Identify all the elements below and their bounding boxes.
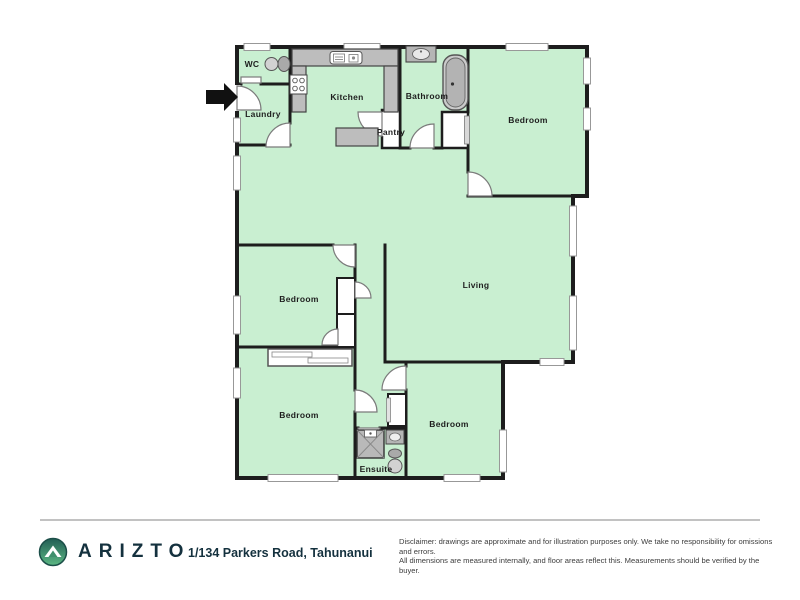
window: [244, 44, 270, 51]
label-kitchen: Kitchen: [330, 92, 363, 102]
mountain-logo-icon: [38, 537, 68, 567]
window: [234, 118, 241, 142]
ensuite-sink-icon: [386, 430, 404, 444]
label-pantry: Pantry: [377, 127, 405, 137]
label-wc: WC: [245, 59, 260, 69]
label-bathroom: Bathroom: [406, 91, 449, 101]
label-ensuite: Ensuite: [360, 464, 393, 474]
property-address: 1/134 Parkers Road, Tahunanui: [188, 546, 373, 560]
brand-name: ARIZTO: [78, 541, 190, 563]
door-leaf-wc: [241, 77, 261, 83]
label-bedroom-bottom-right: Bedroom: [429, 419, 469, 429]
label-bedroom-mid-left: Bedroom: [279, 294, 319, 304]
arizto-logo: [38, 537, 68, 567]
vanity-sink-icon: [406, 46, 436, 62]
window: [234, 296, 241, 334]
window: [584, 58, 591, 84]
window: [444, 475, 480, 482]
shower-icon: [357, 430, 384, 458]
entry-arrow-icon: [206, 83, 238, 111]
stove-icon: [290, 75, 307, 94]
label-laundry: Laundry: [245, 109, 281, 119]
window: [268, 475, 338, 482]
disclaimer: Disclaimer: drawings are approximate and…: [399, 537, 774, 575]
closet-bottom-right: [387, 394, 407, 426]
disclaimer-line-1: Disclaimer: drawings are approximate and…: [399, 537, 774, 556]
label-living: Living: [463, 280, 490, 290]
window: [234, 368, 241, 398]
kitchen-sink-icon: [330, 52, 362, 65]
bathtub-icon: [443, 55, 468, 110]
label-bedroom-bottom-left: Bedroom: [279, 410, 319, 420]
window: [584, 108, 591, 130]
window: [570, 206, 577, 256]
floor-plan: WC Laundry Kitchen Pantry Bathroom Bedro…: [0, 0, 800, 530]
bedroom-wardrobe-top-right: [442, 112, 470, 148]
window: [506, 44, 548, 51]
window: [500, 430, 507, 472]
floorplan-page: WC Laundry Kitchen Pantry Bathroom Bedro…: [0, 0, 800, 600]
disclaimer-line-2: All dimensions are measured internally, …: [399, 556, 774, 575]
hall-cupboards: [337, 278, 355, 347]
wardrobe-strip: [268, 349, 352, 366]
window: [570, 296, 577, 350]
window: [540, 359, 564, 366]
footer-divider: [40, 519, 760, 521]
window: [234, 156, 241, 190]
label-bedroom-top-right: Bedroom: [508, 115, 548, 125]
